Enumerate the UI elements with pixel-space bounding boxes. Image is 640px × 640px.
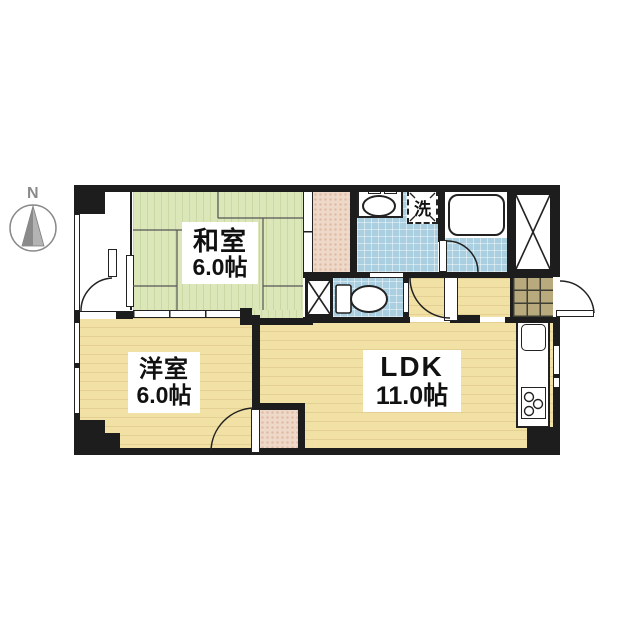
youshitsu-name: 洋室 bbox=[139, 357, 189, 383]
door-leaf-closet-youshitsu bbox=[251, 409, 260, 453]
wall-below-entrance bbox=[505, 317, 557, 323]
toilet-room-floor bbox=[333, 278, 403, 317]
window-kitchen-east-1 bbox=[553, 346, 560, 374]
door-leaf-bath bbox=[439, 240, 447, 272]
wall-closet-south bbox=[303, 272, 357, 278]
wall-closet-washroom bbox=[350, 185, 357, 278]
ldk-name: LDK bbox=[380, 352, 444, 382]
room-label-youshitsu: 洋室 6.0帖 bbox=[128, 352, 200, 413]
ldk-size: 11.0帖 bbox=[376, 383, 448, 410]
column-southwest-ext bbox=[74, 433, 120, 455]
youshitsu-size: 6.0帖 bbox=[137, 383, 192, 408]
window-youshitsu-west-1 bbox=[74, 323, 80, 363]
wall-closet2-east bbox=[298, 403, 305, 455]
pipe-space-small bbox=[305, 278, 333, 317]
closet-washitsu bbox=[313, 192, 350, 272]
kitchen-sink bbox=[521, 324, 546, 351]
hallway-floor bbox=[408, 278, 510, 317]
column-northwest bbox=[74, 185, 105, 214]
washing-machine-label: 洗 bbox=[414, 195, 431, 220]
door-toilet bbox=[403, 283, 409, 312]
fusuma-closet-washitsu bbox=[303, 192, 313, 272]
door-arc-entrance bbox=[560, 281, 594, 313]
door-leaf-hall bbox=[444, 277, 458, 321]
window-kitchen-east-2 bbox=[553, 378, 560, 387]
wall-youshitsu-east bbox=[252, 315, 260, 410]
sliding-door-washitsu-youshitsu bbox=[133, 310, 240, 318]
north-compass-icon bbox=[10, 205, 56, 251]
washitsu-size: 6.0帖 bbox=[193, 255, 248, 280]
wall-north bbox=[74, 185, 560, 192]
sliding-door-washroom bbox=[370, 272, 403, 278]
entrance-step-edge bbox=[510, 278, 513, 317]
washbasin-counter bbox=[357, 190, 403, 218]
room-label-washitsu: 和室 6.0帖 bbox=[182, 222, 258, 284]
pipe-space-large bbox=[513, 192, 553, 272]
column-southeast bbox=[527, 427, 560, 455]
wall-pipespace-west bbox=[507, 192, 513, 272]
kitchen-stove bbox=[521, 387, 546, 419]
washing-machine-space: 洗 bbox=[407, 190, 438, 224]
wall-washroom-bath bbox=[438, 192, 445, 242]
room-label-ldk: LDK 11.0帖 bbox=[363, 350, 461, 412]
wall-south bbox=[74, 448, 560, 455]
closet-youshitsu bbox=[260, 410, 298, 448]
north-label: N bbox=[27, 185, 39, 203]
door-leaf-entrance bbox=[556, 310, 594, 317]
wall-toilet-south bbox=[303, 317, 410, 323]
door-leaf-balcony bbox=[108, 249, 117, 277]
washitsu-name: 和室 bbox=[193, 227, 247, 255]
door-opening-balcony bbox=[80, 312, 116, 319]
floor-plan: 洗 bbox=[0, 0, 640, 640]
window-washitsu-west bbox=[126, 255, 134, 307]
window-youshitsu-west-2 bbox=[74, 368, 80, 413]
bathtub bbox=[448, 194, 505, 236]
entrance-tile bbox=[513, 278, 553, 317]
bathroom-floor bbox=[445, 238, 507, 272]
wall-east-upper bbox=[553, 190, 560, 277]
balcony-railing bbox=[74, 214, 80, 311]
